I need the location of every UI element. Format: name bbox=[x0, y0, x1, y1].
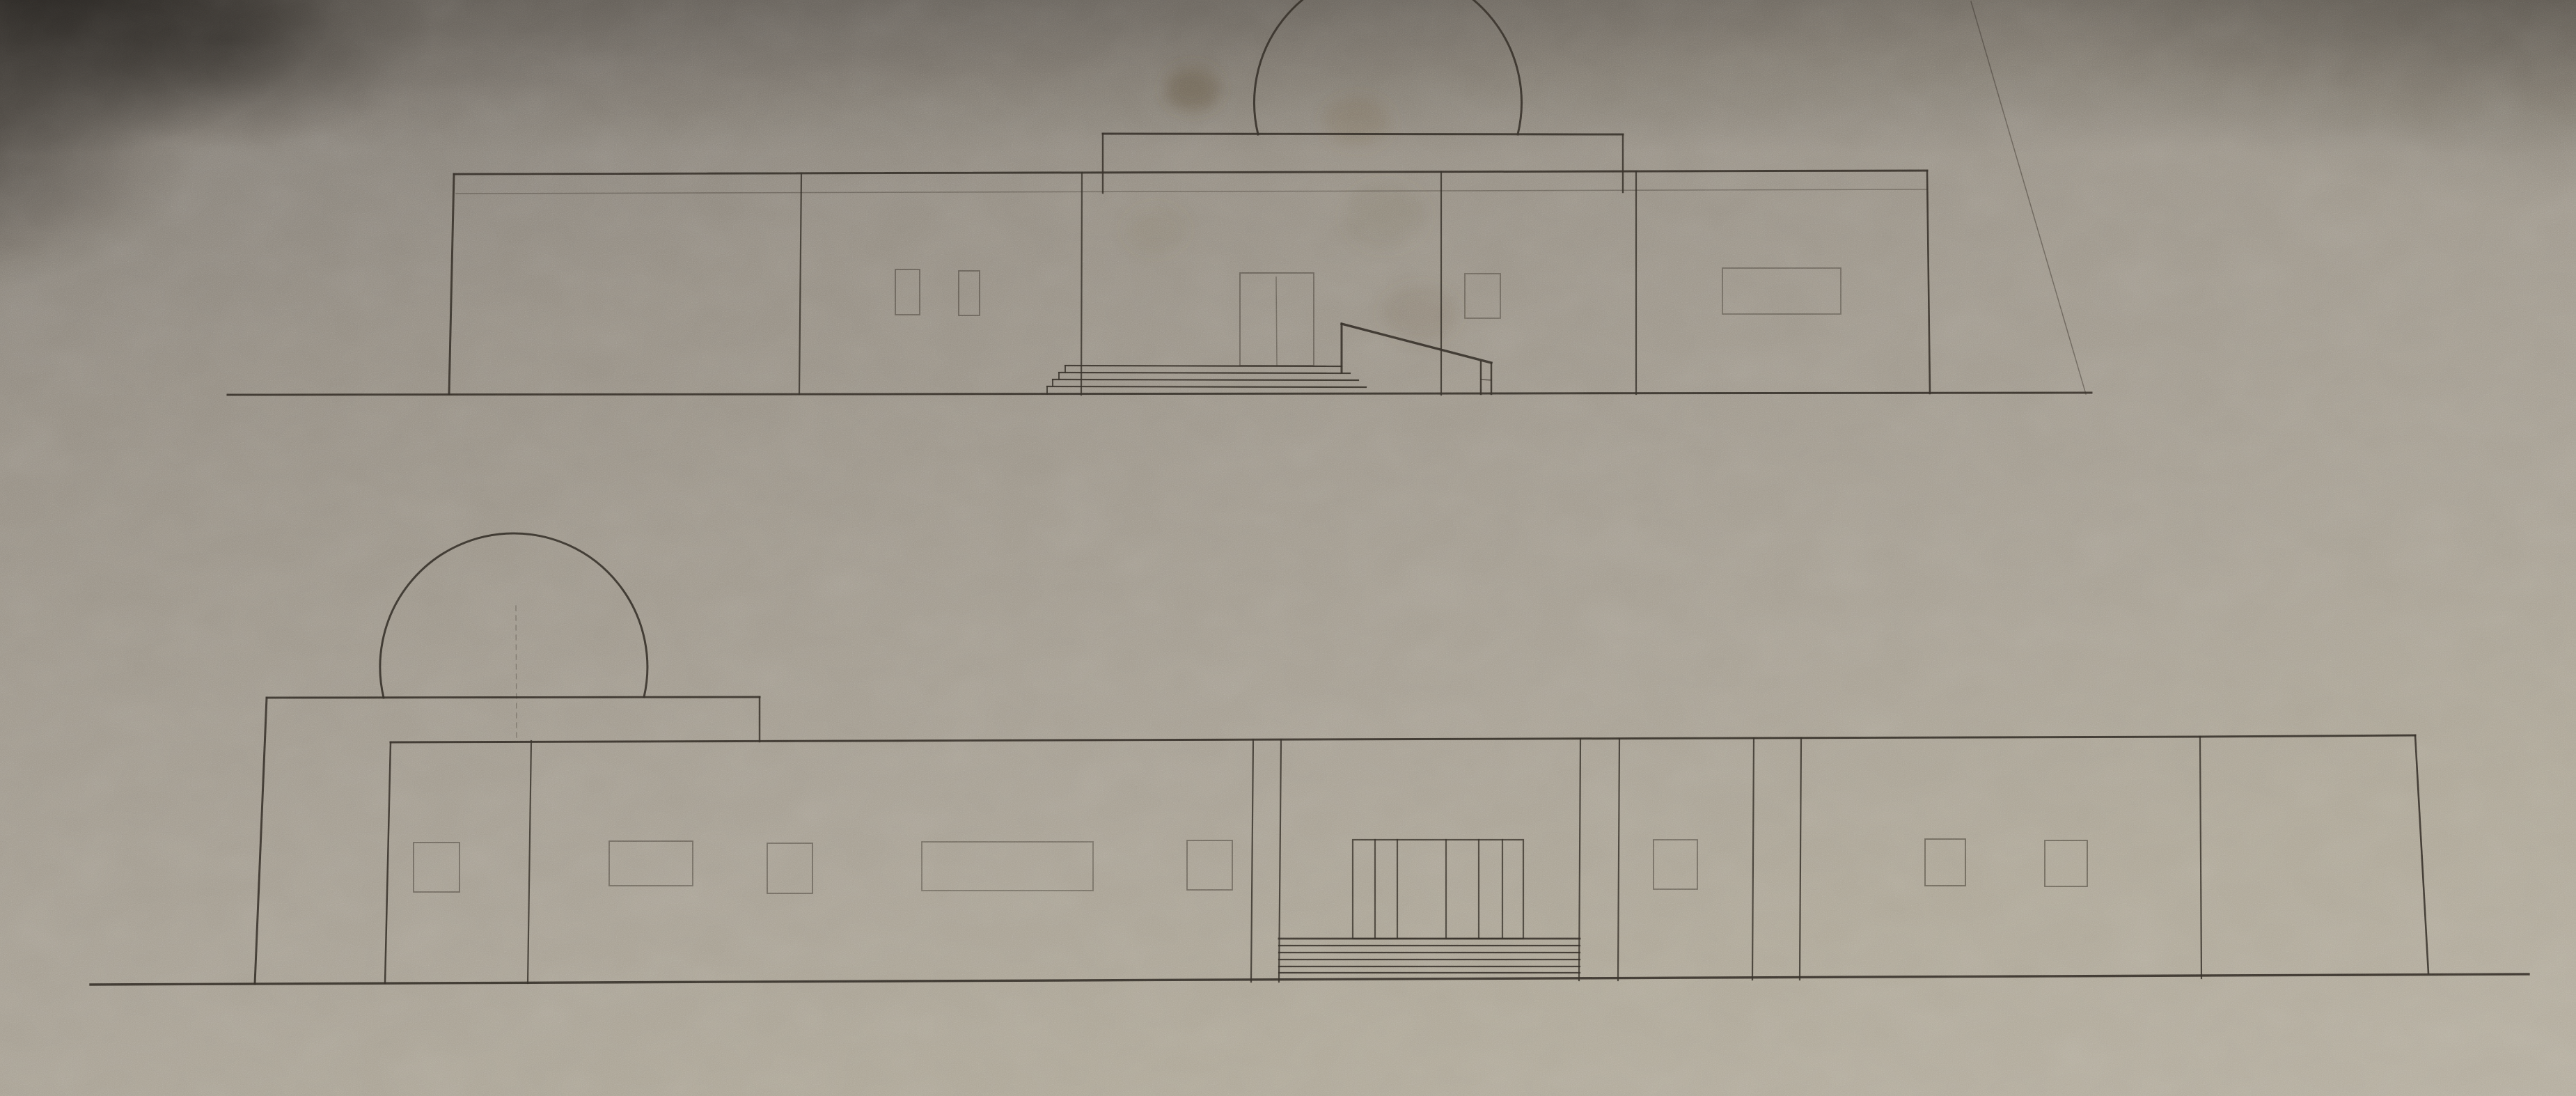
photograph-of-elevation-drawings bbox=[0, 0, 2576, 1096]
drawing-svg bbox=[0, 0, 2576, 1096]
paper-grain-texture bbox=[0, 0, 2576, 1096]
